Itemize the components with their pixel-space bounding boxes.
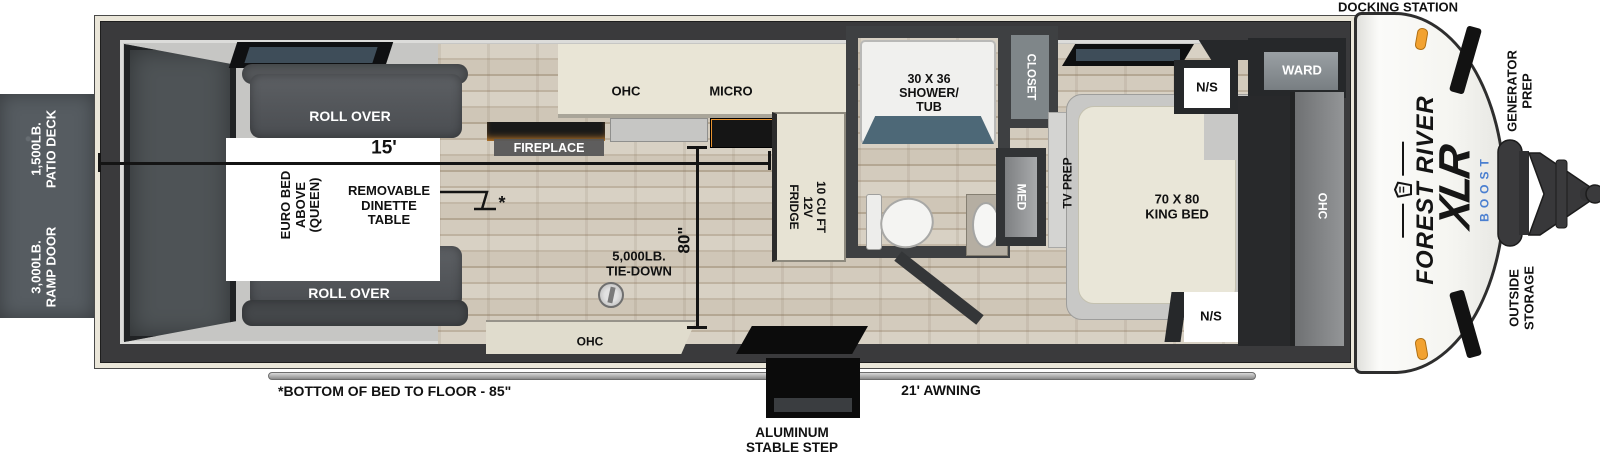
label-line: DINETTE: [348, 199, 430, 214]
fireplace-label-band: FIREPLACE: [494, 139, 604, 156]
logo-dash: [1402, 142, 1404, 176]
label-line: 70 X 80: [1145, 192, 1209, 207]
label-line: TUB: [899, 100, 959, 114]
ohc-kitchen-label: OHC: [612, 85, 641, 100]
wardrobe-label: WARD: [1282, 64, 1322, 79]
ohc-rear-label: OHC: [577, 335, 604, 348]
fridge-label: 10 CU FT 12V FRIDGE: [787, 181, 827, 233]
label-line: PREP: [1520, 50, 1535, 132]
euro-bed-label: EURO BED ABOVE (QUEEN): [279, 171, 323, 240]
med-label: MED: [1014, 184, 1027, 211]
boost-wordmark: BOOST: [1479, 154, 1491, 222]
label-line: TIE-DOWN: [606, 264, 672, 279]
label-line: ABOVE: [294, 171, 309, 240]
dinette-asterisk: *: [498, 193, 505, 213]
range-hood: [610, 118, 708, 142]
cooktop: [710, 118, 773, 148]
entry-door-mat: [736, 326, 868, 354]
roll-over-top-label: ROLL OVER: [309, 109, 390, 125]
dimension-tick: [687, 326, 707, 329]
label-line: EURO BED: [279, 171, 294, 240]
mattress-notch: [1204, 106, 1236, 160]
xlr-boost-logo: XLR BOOST: [1434, 149, 1491, 228]
tongue-hitch: [1492, 138, 1600, 250]
label-line: 12V: [800, 181, 813, 233]
label-line: SHOWER/: [899, 86, 959, 100]
entry-step-tread: [774, 398, 852, 412]
patio-deck-label: 1,500LB. PATIO DECK: [29, 110, 58, 188]
tie-down-label: 5,000LB. TIE-DOWN: [606, 249, 672, 278]
dinette-callout-line: [438, 184, 504, 216]
height-dimension-line: [696, 148, 699, 328]
xlr-boost-logo-block: XLR BOOST: [1434, 149, 1491, 228]
king-bed-label: 70 X 80 KING BED: [1145, 192, 1209, 221]
dinette-label: REMOVABLE DINETTE TABLE: [348, 184, 430, 228]
label-line: (QUEEN): [308, 171, 323, 240]
tv-prep-label: TV PREP: [1061, 157, 1074, 208]
logo-dash: [1402, 204, 1404, 238]
height-dimension-label: 80": [674, 227, 693, 254]
label-line: KING BED: [1145, 207, 1209, 222]
bedroom-window-glass: [1076, 49, 1180, 61]
label-line: PATIO DECK: [44, 110, 59, 188]
ohc-bedroom-label: OHC: [1315, 193, 1328, 220]
label-line: 5,000LB.: [606, 249, 672, 264]
entry-step: [766, 358, 860, 418]
step-label: ALUMINUM STABLE STEP: [746, 425, 838, 455]
generator-prep-label: GENERATOR PREP: [1505, 50, 1534, 132]
length-dimension-label: 15': [371, 137, 397, 158]
sofa-base-bottom: [242, 300, 468, 326]
dimension-tick: [687, 146, 707, 149]
awning-label: 21' AWNING: [901, 383, 981, 399]
label-line: RAMP DOOR: [44, 227, 59, 308]
label-line: REMOVABLE: [348, 184, 430, 199]
micro-label: MICRO: [709, 85, 752, 100]
label-line: STABLE STEP: [746, 440, 838, 455]
tie-down-slot: [607, 287, 615, 304]
awning-rail: [268, 372, 1256, 380]
closet-label: CLOSET: [1024, 54, 1037, 101]
ramp-door-interior: [124, 44, 236, 342]
label-line: 10 CU FT: [814, 181, 827, 233]
kitchen-counter: [558, 44, 846, 118]
label-line: 1,500LB.: [29, 110, 44, 188]
label-line: GENERATOR: [1505, 50, 1520, 132]
shower-tub-rim: [862, 116, 994, 144]
skylight-glass: [244, 47, 377, 63]
label-line: 3,000LB.: [29, 227, 44, 308]
label-line: OUTSIDE: [1507, 266, 1522, 330]
shower-tub-label: 30 X 36 SHOWER/ TUB: [899, 72, 959, 114]
nightstand-front-label: N/S: [1200, 310, 1222, 325]
nightstand-rear-label: N/S: [1196, 81, 1218, 96]
dimension-tick: [98, 153, 101, 172]
forest-river-crest-row: [1394, 142, 1412, 238]
docking-station-label: DOCKING STATION: [1338, 1, 1458, 16]
label-line: FRIDGE: [787, 181, 800, 233]
tie-down-anchor-icon: [598, 282, 624, 308]
ramp-door-label: 3,000LB. RAMP DOOR: [29, 227, 58, 308]
label-line: ALUMINUM: [746, 425, 838, 440]
bed-height-note: *BOTTOM OF BED TO FLOOR - 85": [278, 384, 511, 400]
roll-over-bottom-label: ROLL OVER: [308, 286, 389, 302]
outside-storage-label: OUTSIDE STORAGE: [1507, 266, 1536, 330]
length-dimension-line: [100, 162, 770, 165]
forest-river-crest-icon: [1394, 182, 1412, 198]
label-line: 30 X 36: [899, 72, 959, 86]
roll-over-sofa-top: [250, 74, 462, 138]
floorplan-diagram: 1,500LB. PATIO DECK 3,000LB. RAMP DOOR F…: [0, 0, 1600, 464]
dimension-tick: [768, 151, 771, 170]
label-line: STORAGE: [1522, 266, 1537, 330]
label-line: TABLE: [348, 213, 430, 228]
fireplace-label: FIREPLACE: [514, 141, 585, 155]
xlr-wordmark: XLR: [1434, 145, 1478, 232]
bed-headboard-cabinet: [1238, 96, 1290, 346]
